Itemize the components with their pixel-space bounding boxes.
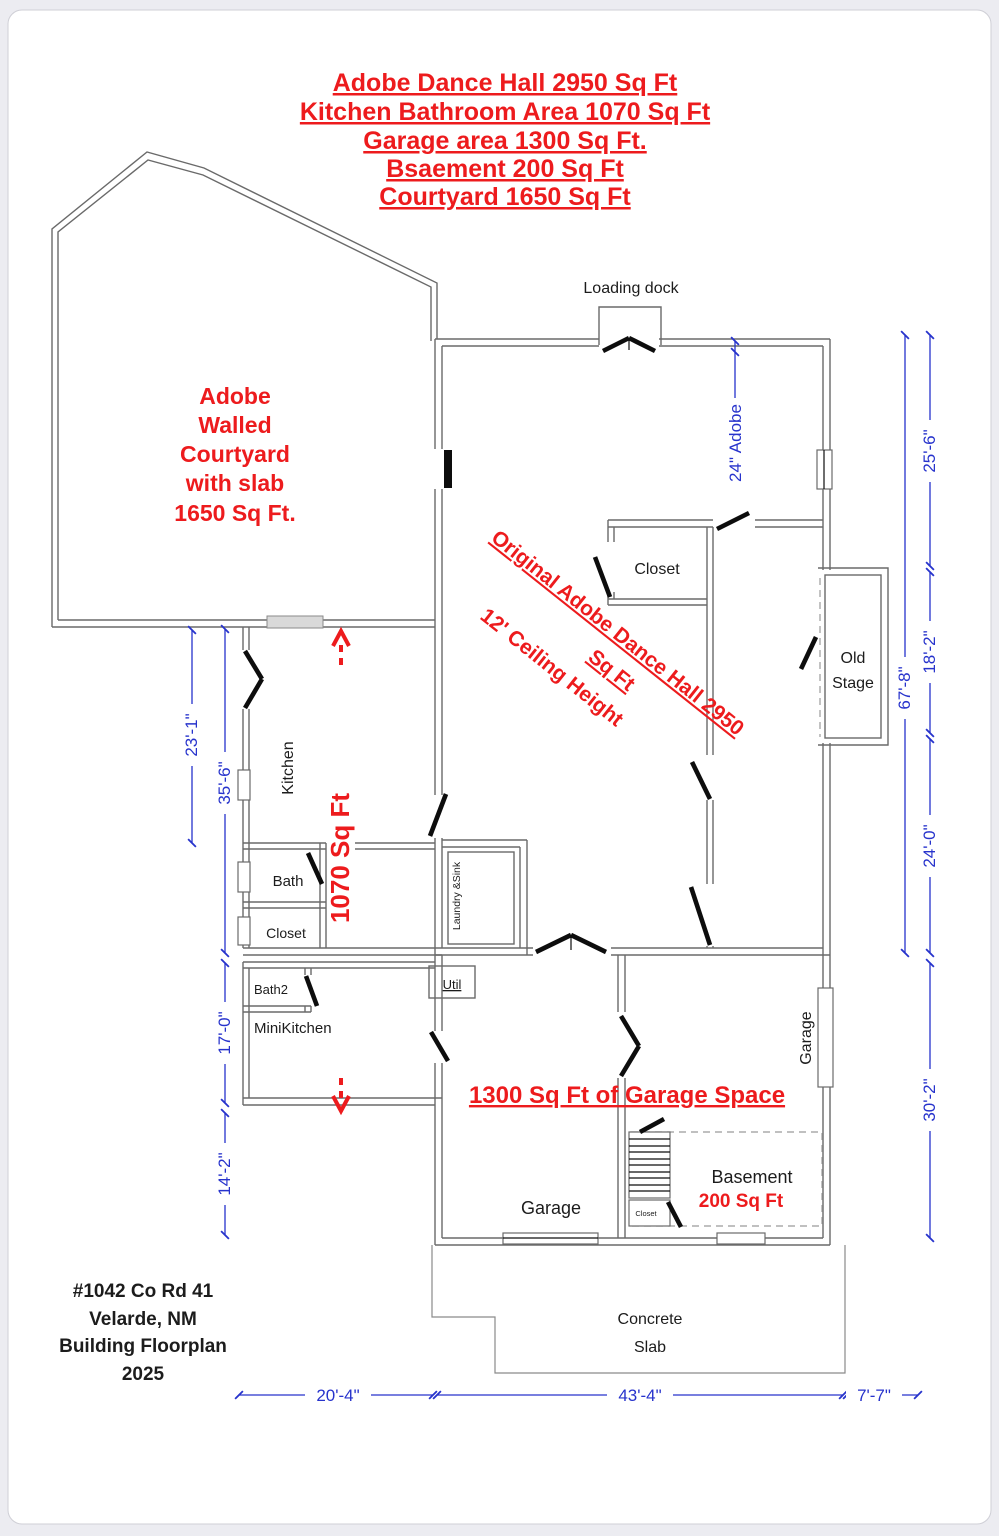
label-hall-closet: Closet: [634, 561, 680, 578]
dim-35-6: 35'-6": [215, 761, 234, 804]
dim-7-7: 7'-7": [857, 1386, 891, 1405]
label-old-stage-2: Stage: [832, 675, 874, 692]
garage-area-note: 1300 Sq Ft of Garage Space: [469, 1082, 785, 1109]
window-kitchen-left-1: [238, 770, 250, 800]
dim-43-4: 43'-4": [618, 1386, 661, 1405]
dim-23-1: 23'-1": [182, 713, 201, 756]
courtyard-door: [444, 450, 452, 488]
dim-17-0: 17'-0": [215, 1011, 234, 1054]
courtyard-line-4: with slab: [185, 470, 284, 496]
address-line-4: 2025: [122, 1364, 165, 1385]
summary-line-3: Garage area 1300 Sq Ft.: [363, 127, 646, 155]
label-bath2: Bath2: [254, 982, 288, 997]
courtyard-line-5: 1650 Sq Ft.: [174, 500, 295, 526]
label-garage-right: Garage: [798, 1011, 815, 1064]
dim-67-8: 67'-8": [895, 666, 914, 709]
courtyard-line-2: Walled: [198, 412, 271, 438]
adobe-wall-note: 24" Adobe: [726, 404, 745, 482]
summary-line-5: Courtyard 1650 Sq Ft: [379, 183, 631, 211]
label-basement: Basement: [711, 1167, 792, 1187]
window-garage-right: [818, 988, 833, 1087]
courtyard-line-1: Adobe: [199, 383, 271, 409]
window-kitchen-left-2: [238, 862, 250, 892]
window-kitchen-top: [267, 616, 323, 628]
floorplan-page: Adobe Dance Hall 2950 Sq Ft Kitchen Bath…: [0, 0, 999, 1536]
floorplan-canvas: Adobe Dance Hall 2950 Sq Ft Kitchen Bath…: [0, 0, 999, 1536]
window-kitchen-left-3: [238, 917, 250, 945]
summary-line-4: Bsaement 200 Sq Ft: [386, 155, 624, 183]
address-line-3: Building Floorplan: [59, 1336, 227, 1357]
label-stairs-closet: Closet: [635, 1209, 657, 1218]
label-concrete-1: Concrete: [618, 1311, 683, 1328]
dim-14-2: 14'-2": [215, 1152, 234, 1195]
dim-25-6: 25'-6": [920, 429, 939, 472]
dim-24-0: 24'-0": [920, 824, 939, 867]
address-line-2: Velarde, NM: [89, 1309, 197, 1330]
dim-30-2: 30'-2": [920, 1078, 939, 1121]
basement-area-note: 200 Sq Ft: [699, 1191, 784, 1212]
kitchen-area-note: 1070 Sq Ft: [325, 793, 355, 923]
courtyard-line-3: Courtyard: [180, 441, 290, 467]
label-bath: Bath: [273, 873, 304, 890]
label-kitchen: Kitchen: [280, 741, 297, 794]
label-old-stage-1: Old: [841, 650, 866, 667]
dim-20-4: 20'-4": [316, 1386, 359, 1405]
label-bath-closet: Closet: [266, 925, 306, 941]
summary-line-2: Kitchen Bathroom Area 1070 Sq Ft: [300, 98, 711, 126]
address-line-1: #1042 Co Rd 41: [73, 1281, 214, 1302]
window-garage-bottom-2: [717, 1233, 765, 1244]
label-minikitchen: MiniKitchen: [254, 1020, 332, 1037]
dim-18-2: 18'-2": [920, 630, 939, 673]
label-loading-dock: Loading dock: [583, 280, 679, 297]
label-garage-left: Garage: [521, 1198, 581, 1218]
label-util: Util: [443, 977, 462, 992]
label-laundry-sink: Laundry &Sink: [451, 861, 463, 930]
label-concrete-2: Slab: [634, 1339, 666, 1356]
summary-line-1: Adobe Dance Hall 2950 Sq Ft: [333, 69, 678, 97]
